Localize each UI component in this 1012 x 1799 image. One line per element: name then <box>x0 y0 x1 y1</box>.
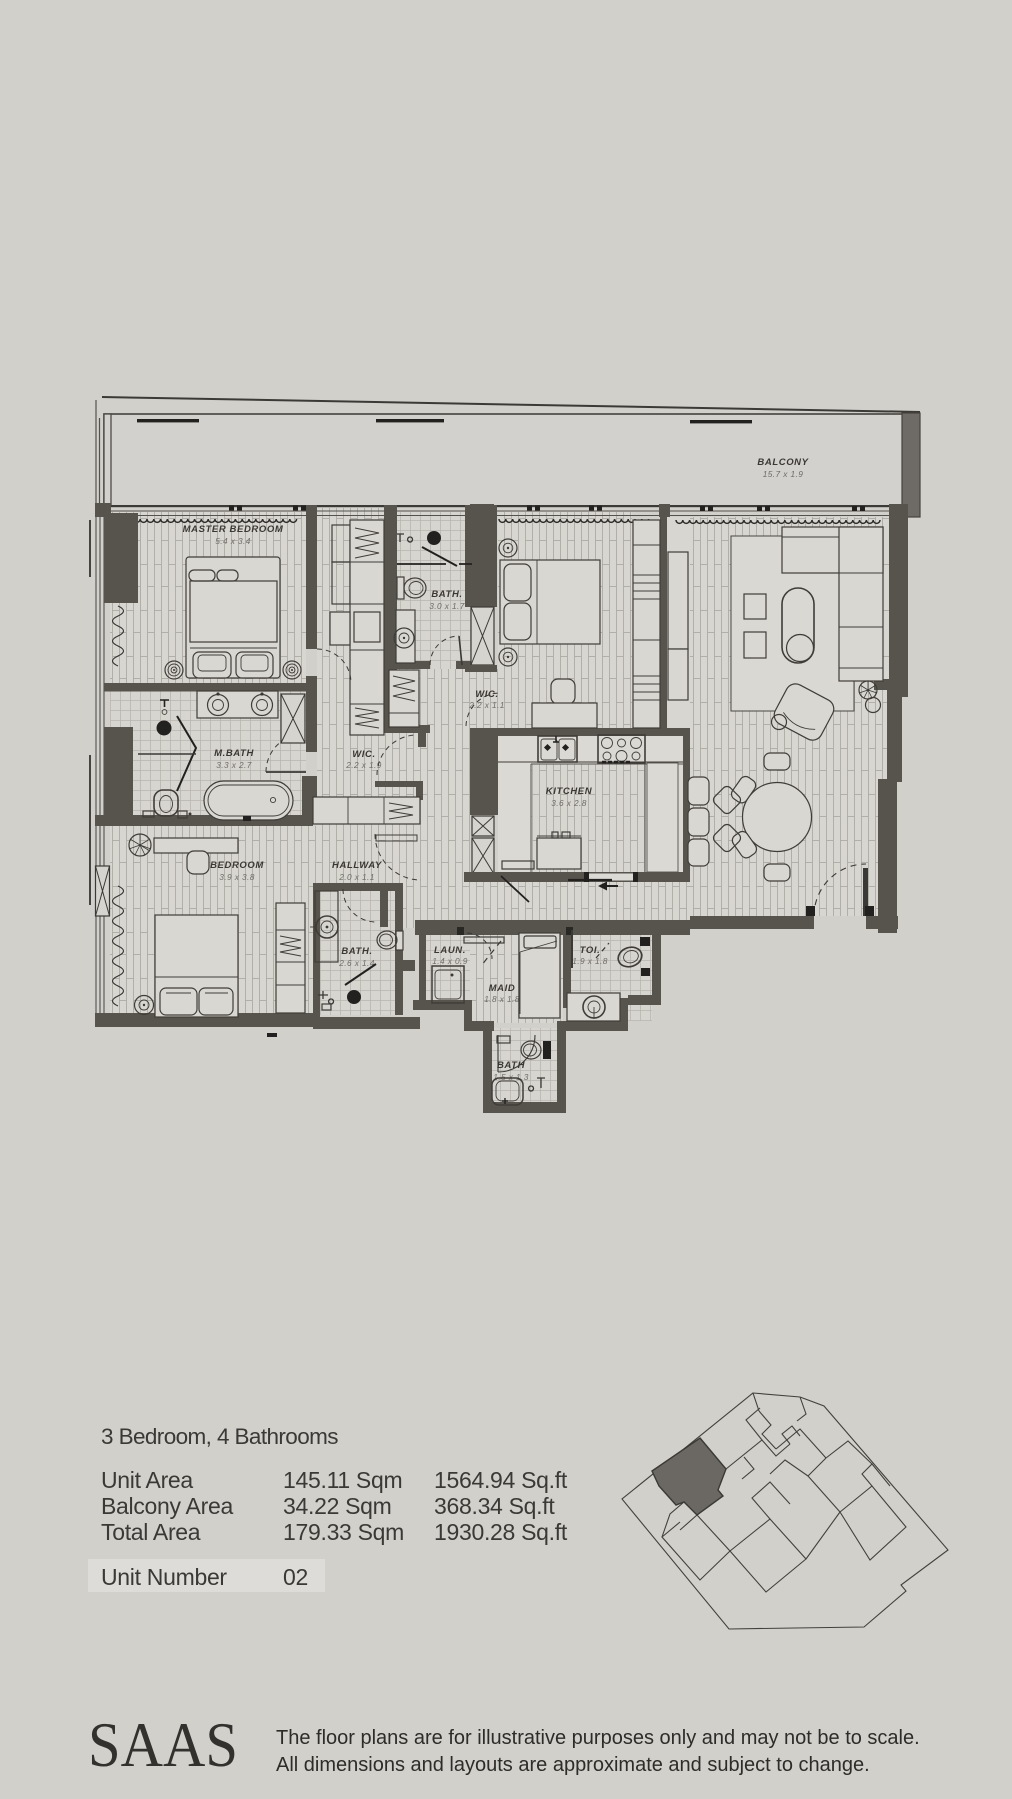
svg-text:MAID: MAID <box>489 983 516 994</box>
svg-text:MASTER BEDROOM: MASTER BEDROOM <box>183 524 284 535</box>
svg-text:3.6 x 2.8: 3.6 x 2.8 <box>551 798 586 808</box>
svg-text:WIC.: WIC. <box>475 689 499 700</box>
svg-text:Total Area: Total Area <box>101 1519 201 1545</box>
svg-text:BATH.: BATH. <box>431 589 462 600</box>
svg-text:Unit Number: Unit Number <box>101 1564 227 1590</box>
svg-text:LAUN.: LAUN. <box>434 945 466 956</box>
svg-text:179.33 Sqm: 179.33 Sqm <box>283 1519 404 1545</box>
svg-text:1.8 x 1.8: 1.8 x 1.8 <box>484 994 519 1004</box>
svg-text:HALLWAY: HALLWAY <box>332 860 383 871</box>
svg-text:BALCONY: BALCONY <box>757 457 809 468</box>
svg-text:BATH.: BATH. <box>341 946 372 957</box>
svg-text:All dimensions and layouts are: All dimensions and layouts are approxima… <box>276 1754 870 1776</box>
svg-text:Balcony Area: Balcony Area <box>101 1493 233 1519</box>
svg-text:2.6 x 1.4: 2.6 x 1.4 <box>338 958 374 968</box>
svg-text:1.5 x 1.3: 1.5 x 1.3 <box>493 1072 528 1082</box>
svg-text:BEDROOM: BEDROOM <box>210 860 264 871</box>
svg-text:145.11 Sqm: 145.11 Sqm <box>283 1467 402 1493</box>
svg-text:1564.94 Sq.ft: 1564.94 Sq.ft <box>434 1467 568 1493</box>
svg-text:1.9 x 1.8: 1.9 x 1.8 <box>572 956 607 966</box>
svg-text:34.22 Sqm: 34.22 Sqm <box>283 1493 392 1519</box>
svg-text:1930.28 Sq.ft: 1930.28 Sq.ft <box>434 1519 568 1545</box>
svg-text:WIC.: WIC. <box>352 749 376 760</box>
svg-text:3.3 x 2.7: 3.3 x 2.7 <box>216 760 251 770</box>
svg-text:2.0 x 1.1: 2.0 x 1.1 <box>338 872 374 882</box>
svg-text:M.BATH: M.BATH <box>214 748 254 759</box>
svg-text:1.4 x 0.9: 1.4 x 0.9 <box>432 956 467 966</box>
svg-text:The floor plans are for illust: The floor plans are for illustrative pur… <box>276 1727 920 1749</box>
svg-text:3.0 x 1.7: 3.0 x 1.7 <box>429 601 464 611</box>
svg-text:TOI.: TOI. <box>580 945 601 956</box>
svg-text:15.7 x 1.9: 15.7 x 1.9 <box>763 469 803 479</box>
svg-text:SAAS: SAAS <box>88 1709 238 1780</box>
svg-text:KITCHEN: KITCHEN <box>546 786 593 797</box>
svg-text:368.34 Sq.ft: 368.34 Sq.ft <box>434 1493 555 1519</box>
svg-text:3.9 x 3.8: 3.9 x 3.8 <box>219 872 254 882</box>
svg-text:3 Bedroom, 4 Bathrooms: 3 Bedroom, 4 Bathrooms <box>101 1424 338 1449</box>
svg-text:Unit Area: Unit Area <box>101 1467 193 1493</box>
svg-text:2.2 x 1.9: 2.2 x 1.9 <box>345 760 381 770</box>
svg-text:5.4 x 3.4: 5.4 x 3.4 <box>215 536 250 546</box>
svg-text:02: 02 <box>283 1564 308 1590</box>
